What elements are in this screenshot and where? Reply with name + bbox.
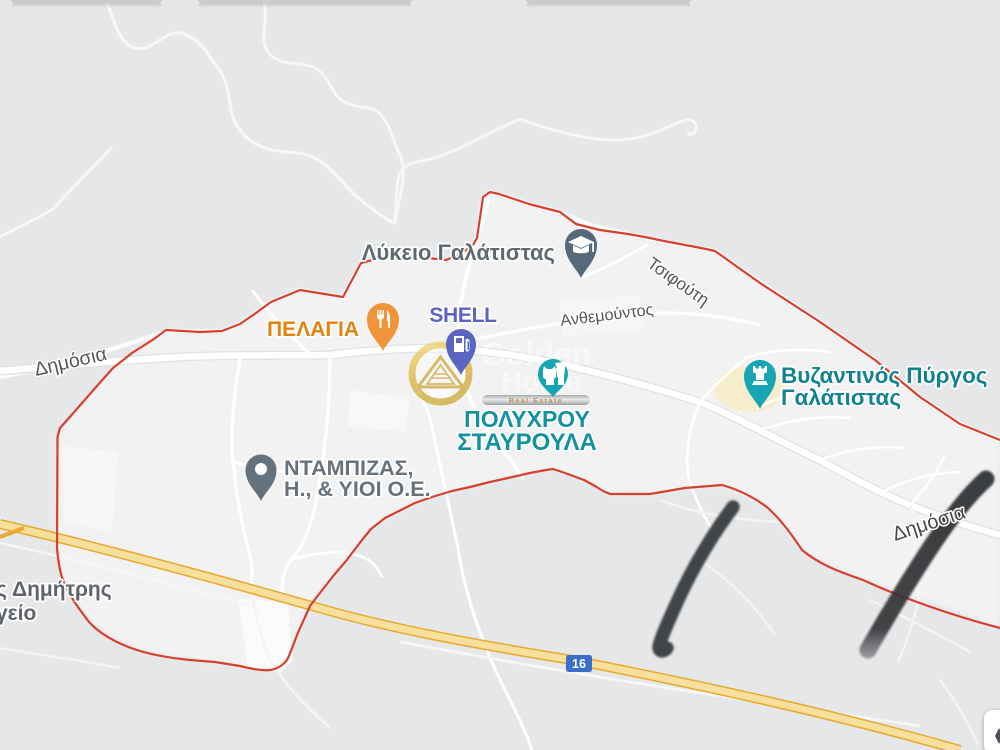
svg-text:Real Estate: Real Estate xyxy=(509,398,563,405)
svg-text:ΣΤΑΥΡΟΥΛΑ: ΣΤΑΥΡΟΥΛΑ xyxy=(457,429,597,456)
svg-text:16: 16 xyxy=(572,657,586,671)
svg-text:γείο: γείο xyxy=(0,602,36,625)
svg-text:Η., & ΥΙΟΙ Ο.Ε.: Η., & ΥΙΟΙ Ο.Ε. xyxy=(284,477,431,501)
svg-text:ς Δημήτρης: ς Δημήτρης xyxy=(0,578,112,601)
svg-text:Λύκειο Γαλάτιστας: Λύκειο Γαλάτιστας xyxy=(362,240,555,265)
svg-text:Γαλάτιστας: Γαλάτιστας xyxy=(781,385,901,410)
svg-text:SHELL: SHELL xyxy=(429,304,497,327)
svg-text:ΠΕΛΑΓΙΑ: ΠΕΛΑΓΙΑ xyxy=(267,318,359,341)
